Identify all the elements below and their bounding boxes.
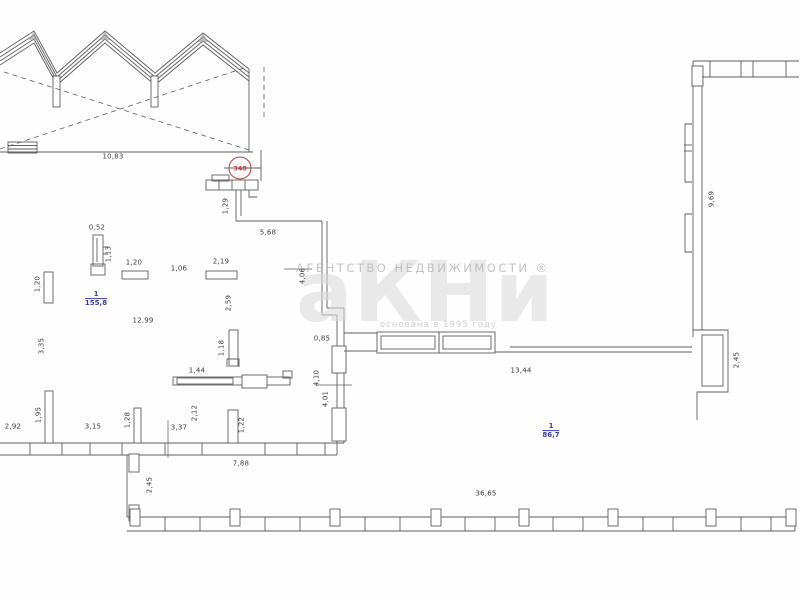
dimension-label: 3,35 [39, 338, 46, 354]
dimension-label: 9,69 [709, 191, 716, 207]
dimension-label: 2,92 [5, 424, 21, 431]
dimension-label: 1,06 [171, 266, 187, 273]
right-wall [684, 61, 728, 420]
room-area: 86,7 [542, 432, 559, 440]
dimension-label: 0,52 [89, 225, 105, 232]
room-area-label: 1 86,7 [542, 422, 559, 440]
dimension-label: 2,59 [226, 295, 233, 311]
room-area-label: 1 155,8 [85, 290, 107, 308]
dimension-label: 12,99 [132, 318, 153, 325]
room1-interior-columns [44, 235, 238, 366]
floor-plan-page: аКНи АГЕНТСТВО НЕДВИЖИМОСТИ ® основана в… [0, 0, 800, 600]
dimension-label: 13,44 [510, 368, 531, 375]
dimension-label: 7,88 [233, 461, 249, 468]
sawtooth-roof [0, 31, 264, 153]
dimension-label: 1,29 [223, 198, 230, 214]
dimension-label: 2,45 [734, 352, 741, 368]
entry-passage-walls [236, 190, 322, 221]
room-number: 1 [85, 290, 107, 299]
revision-mark: 348 [229, 157, 252, 180]
dimension-label: 4,01 [323, 391, 330, 407]
watermark-agency-text: АГЕНТСТВО НЕДВИЖИМОСТИ ® [296, 261, 511, 275]
dimension-label: 2,12 [192, 405, 199, 421]
room-number: 1 [542, 422, 559, 431]
dimension-label: 5,68 [260, 230, 276, 237]
north-window-band [206, 175, 258, 190]
dimension-label: 4,06 [300, 268, 307, 284]
dimension-label: 4,10 [314, 370, 321, 386]
room-area: 155,8 [85, 300, 107, 308]
revision-number: 348 [233, 164, 247, 172]
dimension-label: 1,44 [189, 368, 205, 375]
dimension-label: 3,37 [171, 425, 187, 432]
dimension-label: 1,95 [36, 407, 43, 423]
dimension-label: 0,85 [314, 336, 330, 343]
bottom-wall [127, 509, 796, 531]
watermark-subtext: основана в 1995 году [380, 320, 497, 330]
dimension-label: 1,22 [239, 417, 246, 433]
dimension-label: 1,13 [106, 246, 113, 262]
dimension-label: 1,28 [125, 412, 132, 428]
dimension-label: 3,15 [85, 424, 101, 431]
top-right-wall-band [693, 61, 799, 77]
dimension-label: 1,18 [219, 340, 226, 356]
dimension-label: 36,65 [475, 491, 496, 498]
dimension-label: 1,20 [126, 260, 142, 267]
dimension-label: 2,19 [213, 259, 229, 266]
dimension-label: 10,83 [102, 154, 123, 161]
dimension-label: 2,45 [147, 477, 154, 493]
dimension-label: 1,20 [35, 276, 42, 292]
